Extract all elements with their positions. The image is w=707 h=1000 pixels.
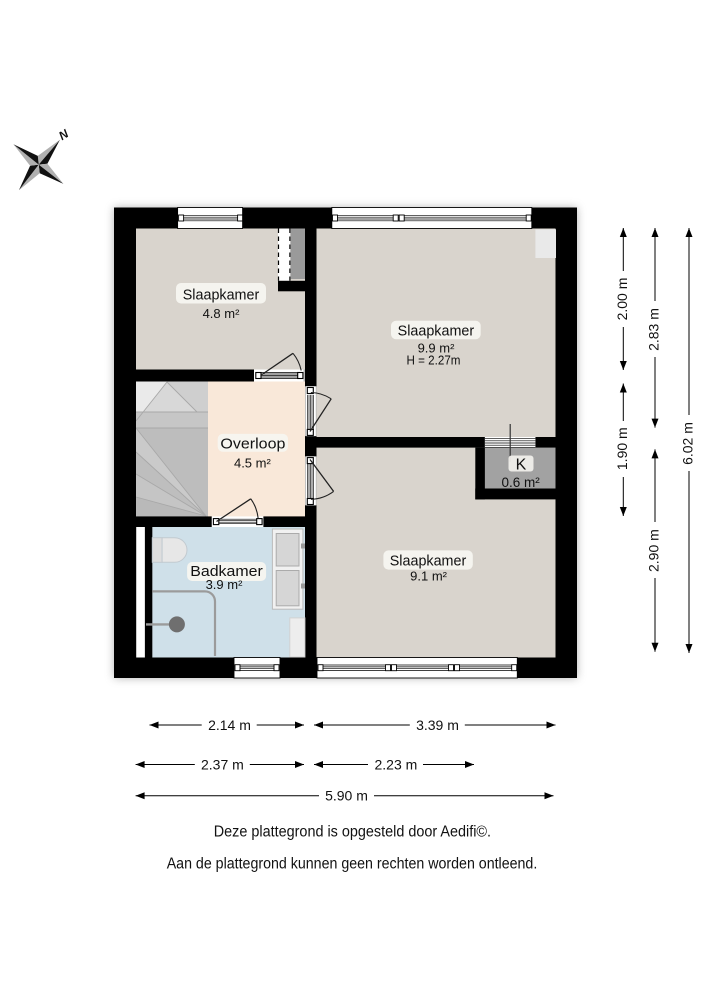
svg-text:3.9 m²: 3.9 m²	[206, 577, 244, 592]
svg-text:K: K	[516, 456, 527, 473]
svg-text:Slaapkamer: Slaapkamer	[398, 322, 475, 339]
svg-text:Slaapkamer: Slaapkamer	[183, 286, 260, 303]
svg-text:Deze plattegrond is opgesteld: Deze plattegrond is opgesteld door Aedif…	[214, 824, 491, 841]
svg-text:0.6 m²: 0.6 m²	[501, 475, 540, 490]
svg-text:2.23 m: 2.23 m	[374, 757, 417, 773]
svg-text:Slaapkamer: Slaapkamer	[390, 552, 467, 569]
svg-text:2.37 m: 2.37 m	[201, 757, 244, 773]
svg-text:2.14 m: 2.14 m	[208, 717, 251, 733]
svg-text:6.02 m: 6.02 m	[680, 422, 696, 465]
svg-text:5.90 m: 5.90 m	[325, 788, 368, 804]
svg-text:Aan de plattegrond kunnen geen: Aan de plattegrond kunnen geen rechten w…	[167, 856, 538, 873]
svg-text:H = 2.27m: H = 2.27m	[407, 354, 461, 368]
svg-text:4.5 m²: 4.5 m²	[234, 456, 272, 471]
svg-text:1.90 m: 1.90 m	[614, 427, 630, 470]
svg-text:2.83 m: 2.83 m	[646, 308, 662, 351]
svg-text:2.90 m: 2.90 m	[646, 529, 662, 572]
svg-text:4.8 m²: 4.8 m²	[203, 306, 241, 321]
svg-text:Overloop: Overloop	[220, 435, 285, 452]
svg-text:9.1 m²: 9.1 m²	[410, 569, 448, 584]
svg-text:3.39 m: 3.39 m	[416, 717, 459, 733]
svg-text:2.00 m: 2.00 m	[614, 278, 630, 321]
